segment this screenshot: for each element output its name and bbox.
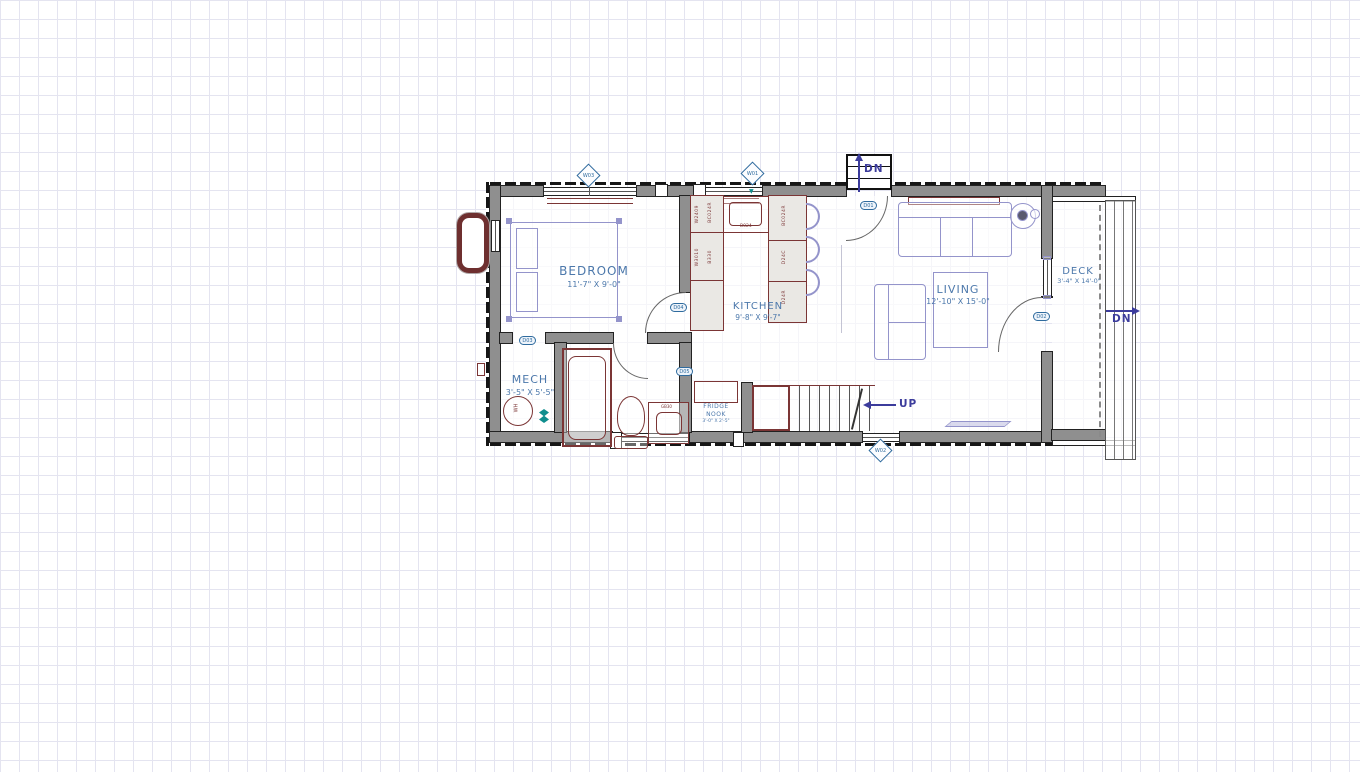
- wall-bedroom-south-2[interactable]: [546, 333, 613, 343]
- stoop-step: [848, 178, 890, 179]
- deck-dn-label[interactable]: DN: [1112, 313, 1132, 325]
- east-window-cap-bottom: [1043, 295, 1051, 299]
- lamp-accent: [1030, 209, 1040, 219]
- sofa-back-line: [899, 217, 1011, 218]
- stairs-up-label[interactable]: UP: [899, 398, 917, 410]
- wall-top-2[interactable]: [637, 186, 700, 196]
- fridge-nook-dims[interactable]: 3'-0" X 2'-5": [702, 420, 729, 425]
- hose-bib[interactable]: [477, 363, 485, 376]
- bedroom-window-mullion: [589, 187, 590, 196]
- floor-register[interactable]: [944, 421, 1011, 427]
- mech-label[interactable]: MECH: [512, 374, 548, 386]
- wall-bedroom-kitchen[interactable]: [680, 196, 691, 292]
- deck-boards[interactable]: [1105, 200, 1136, 460]
- kitchen-dims[interactable]: 9'-8" X 9'-7": [735, 314, 780, 322]
- bathtub-inner: [568, 356, 606, 440]
- sofa-cushion-line: [940, 218, 941, 256]
- vanity-code: GB30: [661, 404, 672, 409]
- counter-divider: [769, 240, 806, 241]
- kitchen-sink-basin: [729, 202, 762, 226]
- floor-plan-canvas: BEDROOM 11'-7" X 9'-0" W2409 BC024R W301…: [0, 0, 1360, 772]
- window-well[interactable]: [457, 213, 489, 273]
- cabinet-code: D24C: [782, 250, 787, 264]
- armchair-seat-line: [889, 322, 925, 323]
- deck-dims[interactable]: 3'-4" X 14'-0": [1057, 278, 1101, 285]
- window-tag-text: W03: [581, 168, 596, 183]
- sink-code: B024: [740, 224, 752, 229]
- wall-top-4[interactable]: [892, 186, 1105, 196]
- vanity-basin: [656, 412, 682, 435]
- entry-dn-arrow-head: [855, 153, 863, 161]
- bed-post: [616, 316, 622, 322]
- wall-bedroom-south-3[interactable]: [648, 333, 691, 343]
- deck-dn-arrow-head: [1132, 307, 1140, 315]
- cabinet-code: W2409: [695, 205, 700, 223]
- kitchen-label[interactable]: KITCHEN: [733, 301, 783, 312]
- counter-divider: [769, 281, 806, 282]
- cabinet-code: BC024R: [782, 205, 787, 226]
- left-wall-window[interactable]: [491, 220, 500, 252]
- door-tag-text: D01: [863, 203, 873, 209]
- stair-landing[interactable]: [752, 385, 790, 431]
- wall-east-lower[interactable]: [1042, 352, 1052, 442]
- counter-divider: [691, 280, 723, 281]
- tag-pointer-icon: ▼: [749, 188, 754, 195]
- door-tag[interactable]: D04: [670, 303, 687, 312]
- toilet-tank: [614, 436, 648, 449]
- wall-bottom-3[interactable]: [900, 432, 1052, 442]
- living-east-window[interactable]: [1043, 258, 1052, 297]
- up-arrow-head: [863, 401, 871, 409]
- wall-deck-bottom[interactable]: [1052, 430, 1105, 440]
- bedroom-window-sill: [547, 198, 633, 204]
- deck-dn-arrow-line: [1106, 310, 1134, 312]
- wall-post: [655, 184, 668, 197]
- window-tag-text: W02: [873, 443, 888, 458]
- bedroom-dims[interactable]: 11'-7" X 9'-0": [567, 281, 621, 290]
- bed-pillow: [516, 228, 538, 269]
- cabinet-code: B330: [708, 250, 713, 264]
- fridge[interactable]: [694, 381, 738, 403]
- bedroom-window[interactable]: [543, 187, 637, 196]
- up-arrow-line: [870, 404, 896, 406]
- floor-transition-line: [841, 245, 842, 333]
- bed-post: [506, 218, 512, 224]
- wall-bedroom-south-1[interactable]: [500, 333, 512, 343]
- fridge-nook-label-2[interactable]: NOOK: [706, 412, 726, 419]
- wall-bottom-2[interactable]: [690, 432, 862, 442]
- sofa[interactable]: [898, 202, 1012, 257]
- wall-post: [733, 432, 744, 447]
- roof-overhang-dashed: [1099, 205, 1101, 437]
- bed-post: [506, 316, 512, 322]
- entry-dn-arrow-line: [858, 160, 860, 192]
- wall-fridge-stairs[interactable]: [742, 383, 752, 432]
- bed-post: [616, 218, 622, 224]
- sofa-cushion-line: [972, 218, 973, 256]
- door-tag-text: D04: [673, 305, 683, 311]
- toilet-bowl[interactable]: [617, 396, 645, 436]
- door-tag[interactable]: D02: [1033, 312, 1050, 321]
- door-tag-text: D03: [522, 338, 532, 344]
- wall-top-3[interactable]: [763, 186, 846, 196]
- entry-dn-label[interactable]: DN: [864, 163, 884, 175]
- counter-divider: [691, 232, 723, 233]
- bed-pillow: [516, 272, 538, 312]
- deck-label[interactable]: DECK: [1062, 266, 1094, 277]
- bedroom-label[interactable]: BEDROOM: [559, 265, 629, 278]
- table-lamp: [1017, 210, 1028, 221]
- fridge-nook-label-1[interactable]: FRIDGE: [703, 404, 728, 411]
- east-window-cap-top: [1043, 256, 1051, 260]
- door-tag[interactable]: D05: [676, 367, 693, 376]
- cabinet-code: BC024R: [708, 202, 713, 223]
- water-heater-code: WH: [513, 404, 519, 413]
- wall-east-upper[interactable]: [1042, 186, 1052, 258]
- door-tag-text: D02: [1036, 314, 1046, 320]
- door-tag-text: D05: [679, 369, 689, 375]
- door-tag[interactable]: D01: [860, 201, 877, 210]
- window-tag-text: W01: [745, 166, 760, 181]
- deck-porch-floor: [1052, 202, 1105, 430]
- living-dims[interactable]: 12'-10" X 15'-0": [926, 298, 990, 307]
- door-tag[interactable]: D03: [519, 336, 536, 345]
- cabinet-code: W3010: [695, 248, 700, 266]
- living-label[interactable]: LIVING: [937, 284, 980, 296]
